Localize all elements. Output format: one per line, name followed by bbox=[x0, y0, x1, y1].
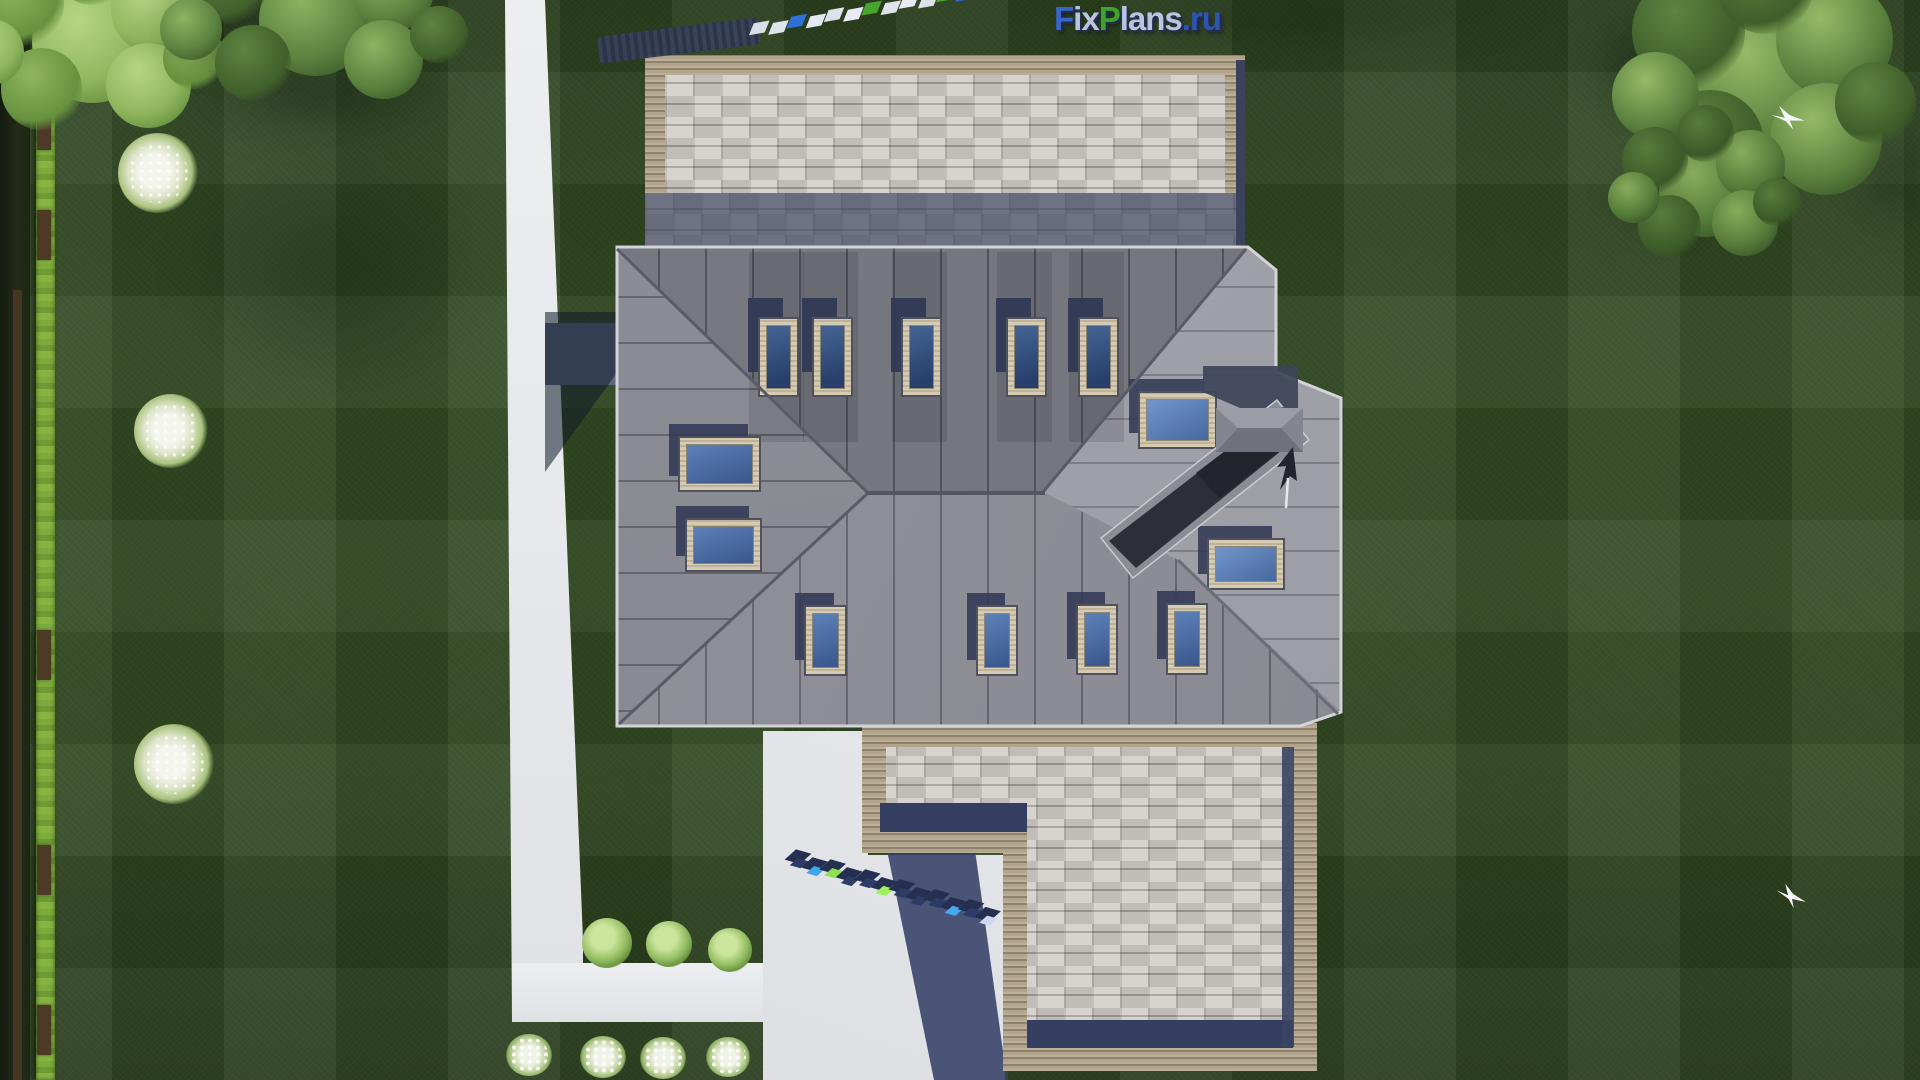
logo-letter: P bbox=[1099, 0, 1120, 37]
tree-clump bbox=[160, 0, 221, 60]
tree-clump bbox=[1835, 62, 1917, 144]
white-flower-bush bbox=[118, 133, 198, 213]
roof-window bbox=[1138, 391, 1217, 449]
green-bush bbox=[582, 918, 632, 968]
terrace-shadow-strip bbox=[880, 803, 1027, 832]
annex-roof-shadow-band bbox=[645, 193, 1245, 252]
roof-window bbox=[1207, 538, 1285, 590]
roof-window bbox=[1076, 604, 1118, 675]
roof-window-glass bbox=[820, 325, 845, 389]
ground-logo-letter bbox=[824, 7, 845, 22]
annex-roof-edge bbox=[1236, 60, 1245, 252]
roof-window-glass bbox=[984, 613, 1010, 668]
roof-window-glass bbox=[693, 526, 754, 564]
flower-bush bbox=[580, 1036, 626, 1078]
hedge-post bbox=[37, 845, 51, 895]
hedge-post bbox=[37, 630, 51, 680]
tree-clump bbox=[1608, 172, 1659, 223]
roof-window bbox=[804, 605, 847, 676]
green-bush bbox=[646, 921, 692, 967]
ground-logo-letter bbox=[786, 14, 807, 29]
fence-rail bbox=[13, 290, 22, 1080]
terrace-shadow-strip bbox=[1282, 747, 1294, 1047]
roof-window-glass bbox=[1086, 325, 1111, 389]
ground-logo-letter bbox=[861, 1, 882, 16]
roof-window-glass bbox=[909, 325, 934, 389]
ground-logo-letter bbox=[936, 0, 957, 2]
hedge-row bbox=[36, 0, 55, 1080]
roof-window-glass bbox=[1084, 612, 1110, 667]
ground-logo-letter bbox=[955, 0, 976, 2]
tree bbox=[1615, 115, 1795, 265]
tree bbox=[160, 0, 470, 110]
white-flower-bush bbox=[134, 724, 214, 804]
tree-clump bbox=[215, 25, 291, 101]
flower-bush bbox=[640, 1037, 686, 1079]
tree-clump bbox=[410, 6, 468, 64]
roof-window-glass bbox=[812, 613, 839, 668]
tree-clump bbox=[1753, 178, 1801, 226]
roof-window-glass bbox=[766, 325, 791, 389]
aerial-house-render: FixPlans.ru bbox=[0, 0, 1920, 1080]
letter-cap bbox=[979, 916, 997, 926]
roof-window-glass bbox=[1174, 611, 1200, 667]
roof-window bbox=[758, 317, 799, 397]
roof-window bbox=[678, 436, 761, 492]
logo-letter: F bbox=[1054, 0, 1073, 37]
roof-window bbox=[685, 518, 762, 572]
hedge-post bbox=[37, 210, 51, 260]
ground-logo-letter bbox=[899, 0, 920, 9]
fixplans-logo: FixPlans.ru bbox=[1054, 0, 1221, 38]
roof-window-glass bbox=[1014, 325, 1039, 389]
logo-letter: lans bbox=[1120, 0, 1182, 37]
roof-window bbox=[1006, 317, 1047, 397]
shingle-texture bbox=[645, 193, 1245, 252]
roof-window-glass bbox=[686, 444, 753, 484]
green-bush bbox=[708, 928, 752, 972]
logo-letter: .ru bbox=[1182, 0, 1221, 37]
roof-window bbox=[976, 605, 1018, 676]
ground-logo-letter bbox=[749, 20, 770, 35]
roof-window-glass bbox=[1146, 399, 1209, 441]
tree-clump bbox=[1677, 105, 1734, 162]
flower-bush bbox=[506, 1034, 552, 1076]
roof-window bbox=[1166, 603, 1208, 675]
white-flower-bush bbox=[134, 394, 208, 468]
roof-window bbox=[1078, 317, 1119, 397]
terrace-shadow-strip bbox=[1027, 1020, 1293, 1048]
hedge-post bbox=[37, 1005, 51, 1055]
roof-window-glass bbox=[1215, 546, 1277, 582]
roof-window bbox=[901, 317, 942, 397]
roof-window bbox=[812, 317, 853, 397]
logo-letter: ix bbox=[1073, 0, 1099, 37]
